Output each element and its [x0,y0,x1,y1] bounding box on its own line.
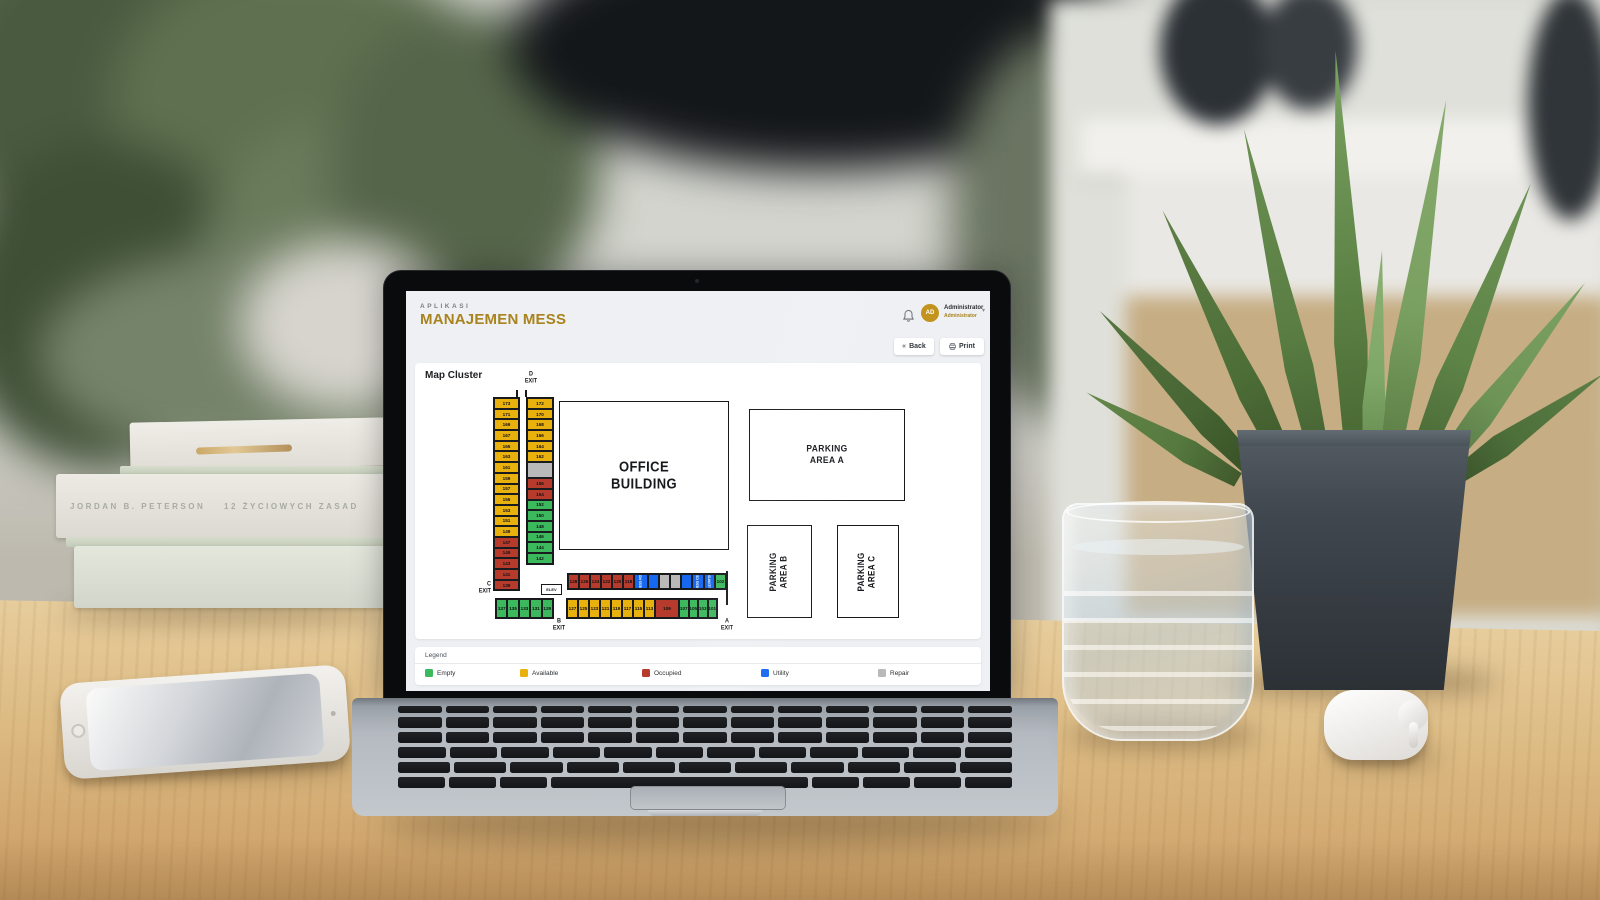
room-business-center: BUSINESS CENTER [692,574,704,589]
back-button-label: Back [909,343,926,350]
laptop-key [968,717,1012,728]
room-cell-utility [681,574,692,589]
room-102: 102 [715,574,726,589]
avatar[interactable]: AD [921,304,939,322]
laptop-keyboard-deck [352,698,1058,816]
laptop-key [873,717,917,728]
laptop-key [553,747,601,758]
book-top [130,417,391,470]
room-167: 167 [494,430,519,441]
keyboard [398,706,1012,780]
laptop-key [450,747,498,758]
laptop-key [588,717,632,728]
room-142: 142 [527,553,553,564]
phone-camera [331,711,336,716]
room-162: 162 [527,451,553,462]
room-cell-utility [648,574,659,589]
logo-title: MANAJEMEN MESS [420,311,566,328]
room-156: 156 [527,478,553,489]
print-button-label: Print [959,343,975,350]
room-157: 157 [494,484,519,495]
room-151: 151 [494,516,519,527]
room-cell-repair [670,574,681,589]
legend-item-occupied: Occupied [642,669,681,677]
laptop-key [679,762,731,773]
legend-label: Empty [437,670,455,677]
earbud [1398,700,1428,730]
room-120: 120 [612,574,623,589]
room-128: 128 [568,574,579,589]
book-spine-author: JORDAN B. PETERSON [70,502,205,511]
laptop-key [541,732,585,743]
room-145: 145 [494,548,519,559]
room-148: 148 [527,521,553,532]
earbud-stem [1409,722,1418,748]
phone-home-button [71,723,86,738]
wall-d-exit [525,390,527,397]
room-127: 127 [567,599,578,618]
laptop-key [398,706,442,713]
water-surface [1072,539,1244,555]
laptop-key [683,717,727,728]
exit-b-label: B EXIT [545,619,573,632]
laptop-key [683,732,727,743]
room-fitness-room: FITNESS ROOM [634,574,648,589]
laptop-key [791,762,843,773]
room-163: 163 [494,451,519,462]
room-121: 121 [600,599,611,618]
room-146: 146 [527,532,553,543]
book-bottom [74,546,390,608]
trackpad [630,786,786,810]
app-window: APLIKASI MANAJEMEN MESS AD Administrator… [406,291,990,691]
room-143: 143 [494,558,519,569]
book-spine-title: 12 ŻYCIOWYCH ZASAD [224,502,359,511]
laptop-key [848,762,900,773]
back-button[interactable]: « Back [894,338,934,355]
keyboard-row [398,762,1012,773]
room-152: 152 [527,500,553,511]
room-115: 115 [633,599,644,618]
room-126: 126 [579,574,590,589]
laptop-key [449,777,496,788]
keyboard-row [398,717,1012,728]
laptop-key [913,747,961,758]
laptop-key [541,706,585,713]
legend-item-repair: Repair [878,669,909,677]
laptop-key [965,747,1013,758]
room-166: 166 [527,430,553,441]
webcam-icon [695,279,699,283]
laptop-key [826,706,870,713]
exit-d-label: D EXIT [515,372,547,385]
laptop-key [778,706,822,713]
keyboard-row [398,732,1012,743]
room-cell-repair [527,462,553,478]
laptop-key [623,762,675,773]
laptop-lid-notch [648,810,762,816]
legend-card: Legend EmptyAvailableOccupiedUtilityRepa… [415,647,981,685]
room-172: 172 [527,398,553,409]
room-elevator: ELEVATOR [704,574,715,589]
room-119: 119 [611,599,622,618]
logo-subtitle: APLIKASI [420,303,566,310]
exit-a-word: EXIT [713,626,741,632]
desk-scene: JORDAN B. PETERSON 12 ŻYCIOWYCH ZASAD [0,0,1600,900]
room-103: 103 [698,599,708,618]
laptop-key [501,747,549,758]
room-129: 129 [542,599,553,618]
exit-d-word: EXIT [515,379,547,385]
room-133: 133 [519,599,530,618]
room-165: 165 [494,441,519,452]
legend-swatch [878,669,886,677]
parking-area-c: PARKING AREA C [837,525,899,618]
office-building: OFFICE BUILDING [559,401,729,550]
laptop-key [636,732,680,743]
laptop-key [567,762,619,773]
legend-swatch [761,669,769,677]
room-123: 123 [589,599,600,618]
laptop-key [968,706,1012,713]
legend-label: Utility [773,670,789,677]
legend-label: Occupied [654,670,681,677]
laptop-key [588,706,632,713]
legend-title: Legend [425,652,447,659]
room-153: 153 [494,505,519,516]
legend-item-utility: Utility [761,669,789,677]
exit-b-word: EXIT [545,626,573,632]
laptop-key [826,717,870,728]
room-row-south-east: 127125123121119117115113109107105103101 [566,598,718,619]
room-137: 137 [496,599,507,618]
room-125: 125 [578,599,589,618]
exit-a-label: A EXIT [713,619,741,632]
room-161: 161 [494,462,519,473]
laptop-key [398,777,445,788]
laptop-key [446,717,490,728]
legend-label: Repair [890,670,909,677]
parking-area-a: PARKING AREA A [749,409,905,501]
user-role: Administrator [944,313,977,319]
parking-area-b: PARKING AREA B [747,525,812,618]
divider [415,663,981,664]
room-154: 154 [527,489,553,500]
laptop-key [965,777,1012,788]
room-118: 118 [623,574,634,589]
laptop-key [398,732,442,743]
room-131: 131 [530,599,541,618]
room-101: 101 [708,599,718,618]
laptop-key [493,706,537,713]
room-column-west: 1731711691671651631611591571551531511491… [493,397,520,591]
legend-label: Available [532,670,558,677]
glass-ribs [1064,591,1252,731]
keyboard-row [398,706,1012,713]
room-164: 164 [527,441,553,452]
exit-c-word: EXIT [459,589,491,595]
pot-rim [1222,430,1486,446]
room-row-south-west: 137135133131129 [495,598,554,619]
smartphone [59,664,351,780]
laptop-screen-shell: APLIKASI MANAJEMEN MESS AD Administrator… [383,270,1011,700]
laptop-key [588,732,632,743]
chevron-down-icon[interactable]: ▾ [982,307,985,314]
laptop-key [921,706,965,713]
laptop-key [731,732,775,743]
office-line1: OFFICE [611,459,677,475]
laptop-key [914,777,961,788]
room-122: 122 [601,574,612,589]
map-canvas: OFFICE BUILDING PARKING AREA A PARKING [415,363,981,639]
laptop-key [446,732,490,743]
parking-c-line2: AREA C [868,552,878,591]
room-155: 155 [494,494,519,505]
laptop-key [904,762,956,773]
laptop-key [454,762,506,773]
parking-a-line2: AREA A [806,455,847,466]
keyboard-row [398,747,1012,758]
foreground-shade [0,840,1600,900]
room-168: 168 [527,419,553,430]
laptop-key [873,706,917,713]
laptop-key [446,706,490,713]
room-105: 105 [689,599,699,618]
room-135: 135 [507,599,518,618]
legend-swatch [642,669,650,677]
user-name[interactable]: Administrator [944,305,983,311]
room-169: 169 [494,419,519,430]
laptop-key [683,706,727,713]
laptop-key [759,747,807,758]
legend-swatch [425,669,433,677]
room-column-east: 1721701681661641621561541521501481461441… [526,397,554,565]
room-147: 147 [494,537,519,548]
laptop-key [921,717,965,728]
room-label: BUSINESS CENTER [696,574,699,589]
laptop-key [810,747,858,758]
laptop-key [812,777,859,788]
room-117: 117 [622,599,633,618]
legend-swatch [520,669,528,677]
room-159: 159 [494,473,519,484]
notification-bell-icon[interactable] [902,309,915,323]
laptop-key [604,747,652,758]
book-middle: JORDAN B. PETERSON 12 ŻYCIOWYCH ZASAD [56,474,392,538]
laptop-key [636,717,680,728]
laptop-key [863,777,910,788]
laptop-key [493,732,537,743]
laptop-key [731,706,775,713]
elevator-box: ELEV [541,584,562,595]
laptop-key [500,777,547,788]
laptop-key [707,747,755,758]
laptop-key [778,717,822,728]
legend-item-empty: Empty [425,669,455,677]
phone-screen [85,673,324,771]
laptop-key [398,717,442,728]
room-141: 141 [494,569,519,580]
printer-icon [949,343,956,350]
laptop-key [873,732,917,743]
legend-item-available: Available [520,669,558,677]
laptop-key [636,706,680,713]
laptop-key [921,732,965,743]
room-113: 113 [644,599,655,618]
laptop-key [541,717,585,728]
glass-rim [1066,501,1250,523]
room-150: 150 [527,510,553,521]
room-109: 109 [655,599,679,618]
parking-b-line2: AREA B [779,552,789,591]
room-107: 107 [679,599,689,618]
laptop-key [826,732,870,743]
room-149: 149 [494,526,519,537]
water-glass [1062,503,1254,741]
wall-d-exit [516,390,518,397]
laptop-key [862,747,910,758]
room-row-north: 128126124122120118FITNESS ROOMBUSINESS C… [567,573,727,590]
print-button[interactable]: Print [940,338,984,355]
map-cluster-card: Map Cluster OFFICE BUILDING PARKING AREA… [415,363,981,639]
room-label: ELEVATOR [708,574,711,589]
laptop-key [960,762,1012,773]
room-124: 124 [590,574,601,589]
laptop-key [510,762,562,773]
laptop-key [778,732,822,743]
office-line2: BUILDING [611,476,677,492]
laptop-key [656,747,704,758]
room-171: 171 [494,409,519,420]
room-label: FITNESS ROOM [639,574,642,589]
app-logo: APLIKASI MANAJEMEN MESS [420,303,566,328]
exit-c-label: C EXIT [459,582,491,595]
room-173: 173 [494,398,519,409]
laptop-key [398,762,450,773]
laptop-key [493,717,537,728]
laptop-key [735,762,787,773]
room-cell-repair [659,574,670,589]
laptop-key [968,732,1012,743]
laptop-key [398,747,446,758]
room-144: 144 [527,542,553,553]
room-139: 139 [494,580,519,591]
laptop-key [731,717,775,728]
chevrons-left-icon: « [902,343,906,350]
room-170: 170 [527,409,553,420]
